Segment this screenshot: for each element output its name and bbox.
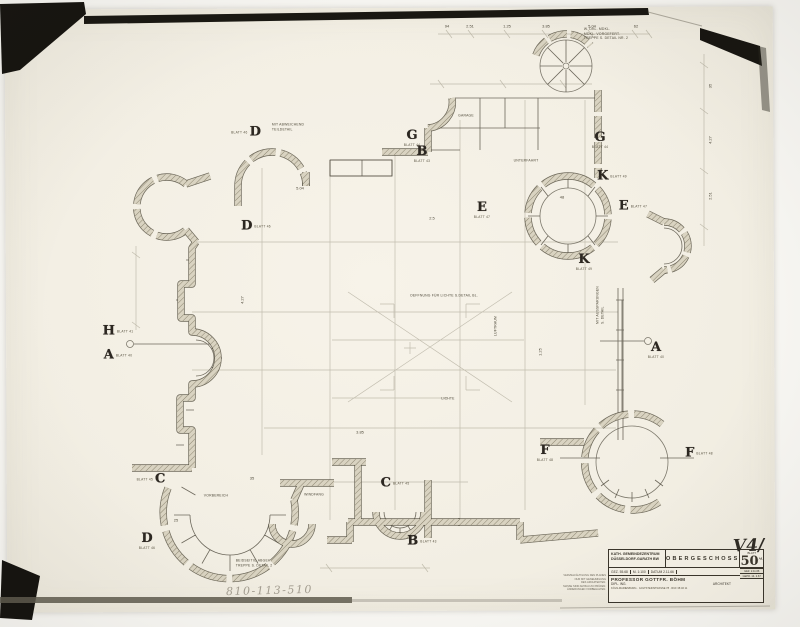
section-letter: B <box>407 535 418 548</box>
section-letter: D <box>250 126 261 139</box>
archival-photo-of-floor-plan: DBLATT 46DBLATT 46GBLATT 44BBLATT 43GBLA… <box>0 0 800 627</box>
section-marker-f: FBLATT 48 <box>537 444 553 462</box>
section-sheet-ref: BLATT 47 <box>631 204 647 208</box>
plan-note: W. DKL. MDKL. MDKL. VORGEFERT. TREPPE S.… <box>584 27 628 41</box>
plan-annotations: DBLATT 46DBLATT 46GBLATT 44BBLATT 43GBLA… <box>0 0 800 627</box>
handwritten-revision: V4/ <box>733 535 765 556</box>
section-letter: F <box>540 444 549 457</box>
legal-note: VERVIELFÄLTIGUNG DES PLANES NUR MIT GENE… <box>548 574 606 592</box>
dimension-label: 1.25 <box>503 24 511 29</box>
section-marker-b: BBLATT 43 <box>407 535 436 548</box>
plan-note: LICHTE <box>441 397 454 402</box>
plan-note: BEIDSEITIG ABGEH. TREPPE S. DETAIL 2 <box>236 558 273 567</box>
dimension-label: 48 <box>560 195 564 200</box>
dimension-label: 25 <box>174 518 178 523</box>
section-marker-b: BBLATT 43 <box>414 145 430 163</box>
section-sheet-ref: BLATT 44 <box>592 145 608 149</box>
stamp-rows: GEZ. 2.11.66 GEPR. 14. 2.67 <box>740 568 763 579</box>
plan-note: MIT AUSSPARUNGEN S. DETAIL <box>595 286 604 324</box>
section-letter: K <box>597 170 608 183</box>
section-marker-k: KBLATT 49 <box>576 253 592 271</box>
plan-note: VORBEREICH <box>204 494 228 499</box>
section-marker-f: FBLATT 48 <box>685 447 713 460</box>
section-marker-e: EBLATT 47 <box>474 201 490 219</box>
plan-note: UNTERFAHRT <box>514 159 539 164</box>
section-letter: A <box>104 349 114 362</box>
architect-degree: DIPL. ING. <box>611 582 626 586</box>
section-sheet-ref: BLATT 43 <box>414 159 430 163</box>
dimension-label: 4.27 <box>708 136 713 144</box>
section-sheet-ref: BLATT 46 <box>139 546 155 550</box>
section-letter: C <box>381 477 391 490</box>
section-marker-d: DBLATT 46 <box>139 532 155 550</box>
dimension-label: 5.04 <box>588 24 596 29</box>
section-marker-e: EBLATT 47 <box>619 200 647 213</box>
dimension-label: 5.04 <box>296 186 304 191</box>
title-block: KATH. GEMEINDEZENTRUM DÜSSELDORF-GARATH … <box>608 549 764 603</box>
section-letter: D <box>241 220 252 233</box>
section-letter: H <box>103 325 115 338</box>
dimension-label: 4.27 <box>240 296 245 304</box>
handwritten-archive-number: 810-113-510 <box>226 583 313 598</box>
section-letter: E <box>619 200 629 213</box>
section-marker-k: KBLATT 49 <box>597 170 627 183</box>
section-sheet-ref: BLATT 49 <box>610 174 626 178</box>
section-letter: K <box>578 253 589 266</box>
dimension-label: 35 <box>708 84 713 88</box>
dimension-label: 2.51 <box>708 192 713 200</box>
date-field: DATUM 2.11.66 <box>649 570 677 574</box>
section-sheet-ref: BLATT 40 <box>116 353 132 357</box>
section-sheet-ref: BLATT 47 <box>474 215 490 219</box>
section-letter: G <box>406 129 417 142</box>
project-line2: DÜSSELDORF-GARATH BW <box>611 557 663 562</box>
project-name: KATH. GEMEINDEZENTRUM DÜSSELDORF-GARATH … <box>609 550 666 567</box>
dimension-label: 94 <box>445 24 449 29</box>
section-sheet-ref: BLATT 48 <box>696 451 712 455</box>
section-sheet-ref: BLATT 40 <box>648 355 664 359</box>
stamp-row: GEPR. 14. 2.67 <box>740 574 763 579</box>
section-letter: B <box>417 145 428 158</box>
section-marker-h: HBLATT 41 <box>103 325 134 338</box>
section-marker-d: DBLATT 46 <box>231 126 261 139</box>
dimension-label: 35 <box>250 476 254 481</box>
plan-note: GARAGE <box>458 114 474 119</box>
architect-role: ARCHITEKT <box>713 582 731 586</box>
dimension-label: 2.5 <box>429 216 435 221</box>
drawn-field: GEZ. 55.68 <box>609 570 631 574</box>
section-sheet-ref: BLATT 41 <box>117 329 133 333</box>
section-marker-a: ABLATT 40 <box>104 349 133 362</box>
dimension-label: 1.25 <box>538 348 543 356</box>
section-letter: A <box>651 341 661 354</box>
scale-field: M. 1:100 <box>631 570 649 574</box>
plan-note: LUFTRAUM <box>494 316 499 336</box>
drawing-title: OBERGESCHOSS <box>666 550 740 567</box>
section-letter: E <box>477 201 487 214</box>
section-letter: D <box>141 532 152 545</box>
section-sheet-ref: BLATT 45 <box>393 481 409 485</box>
section-sheet-ref: BLATT 49 <box>576 267 592 271</box>
plan-note: OEFFNUNG FÜR LICHTE S.DETAIL BL. <box>410 294 478 299</box>
plan-note: WINDFANG <box>304 493 324 498</box>
architect-address: KÖLN-MARIENBURG · GOLTSTEINSTRASSE 78 · … <box>611 587 761 590</box>
section-letter: G <box>594 131 605 144</box>
section-marker-c: CBLATT 45 <box>381 477 410 490</box>
dimension-label: 3.85 <box>542 24 550 29</box>
dimension-label: 2.51 <box>466 24 474 29</box>
section-marker-g: GBLATT 44 <box>592 131 608 149</box>
section-sheet-ref: BLATT 45 <box>137 477 153 481</box>
section-marker-a: ABLATT 40 <box>648 341 664 359</box>
section-sheet-ref: BLATT 46 <box>231 130 247 134</box>
section-letter: C <box>155 473 165 486</box>
sheet-number: 50AL <box>740 555 763 568</box>
dimension-label: 3.85 <box>356 430 364 435</box>
section-sheet-ref: BLATT 46 <box>254 224 270 228</box>
section-marker-d: DBLATT 46 <box>241 220 271 233</box>
section-marker-c: CBLATT 45 <box>137 473 166 486</box>
dimension-label: 62 <box>634 24 638 29</box>
section-sheet-ref: BLATT 48 <box>537 458 553 462</box>
section-letter: F <box>685 447 694 460</box>
plan-note: MIT ABWEICHEND TEILDETAIL <box>272 122 304 131</box>
section-sheet-ref: BLATT 43 <box>420 539 436 543</box>
